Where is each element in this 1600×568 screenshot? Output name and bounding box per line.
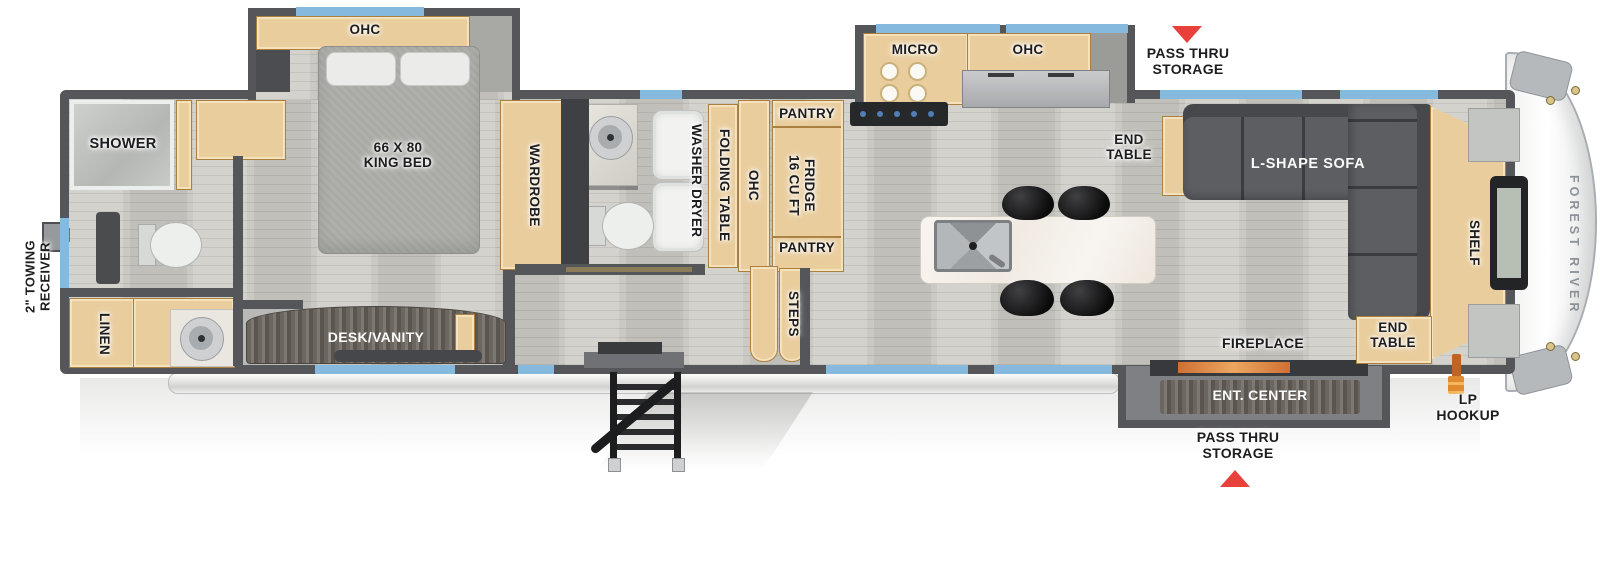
- steps-wall: [800, 268, 810, 366]
- sofa-label: L-SHAPE SOFA: [1213, 156, 1403, 172]
- kitchen-window: [826, 365, 968, 374]
- king-bed-label: 66 X 80 KING BED: [352, 140, 444, 170]
- pass-thru-bottom-label: PASS THRU STORAGE: [1184, 430, 1292, 461]
- pantry-bottom-label: PANTRY: [776, 240, 838, 255]
- rear-window: [60, 218, 69, 288]
- kitchen-window: [994, 365, 1112, 374]
- lower-skirt: [168, 372, 1120, 394]
- range-knob: [911, 111, 917, 117]
- desk-bench: [334, 350, 482, 362]
- pantry-divider: [773, 236, 841, 238]
- tv-screen: [1497, 188, 1521, 278]
- l-sofa-chaise-section: [1348, 104, 1430, 320]
- entry-steps-rail: [610, 372, 617, 462]
- living-window: [1160, 90, 1302, 99]
- entry-door-mat: [598, 342, 662, 354]
- entry-steps-foot: [608, 458, 621, 472]
- pantry-top-label: PANTRY: [776, 106, 838, 121]
- cap-rivet: [1571, 352, 1580, 361]
- bath-wall-cabinet: [96, 212, 120, 284]
- end-table-line2: TABLE: [1370, 335, 1416, 350]
- rv-floorplan-diagram: FOREST RIVER OHC MICRO OHC ENT. CENTER F…: [0, 0, 1600, 568]
- entry-steps-foot: [672, 458, 685, 472]
- king-bed-name: KING BED: [364, 155, 432, 170]
- lp-hookup-label: LP HOOKUP: [1430, 392, 1506, 423]
- island-chair: [1058, 186, 1110, 220]
- micro-label: MICRO: [868, 42, 962, 57]
- range-knob: [928, 111, 934, 117]
- mid-toilet-bowl: [602, 202, 654, 250]
- shelf-lower-cabinet: [1468, 304, 1520, 358]
- cap-rivet: [1571, 86, 1580, 95]
- pass-thru-arrow-icon: [1220, 470, 1250, 487]
- pass-thru-top-label: PASS THRU STORAGE: [1136, 46, 1240, 77]
- pocket-door-header: [566, 267, 692, 272]
- entry-door-landing: [584, 352, 684, 368]
- king-bed-size: 66 X 80: [374, 140, 423, 155]
- range-knob: [860, 111, 866, 117]
- linen-label: LINEN: [90, 310, 112, 358]
- kitchen-slide-window: [876, 24, 1000, 33]
- fridge-label: 16 CU FT FRIDGE: [786, 138, 826, 232]
- counter-handle: [988, 73, 1014, 77]
- cooktop-burner: [908, 62, 927, 81]
- bath-ohc-label: OHC: [745, 150, 761, 220]
- bedroom-ohc-label: OHC: [330, 22, 400, 37]
- bath-sink-drain: [607, 134, 614, 141]
- fireplace-insert: [1178, 362, 1290, 373]
- lp-line2: HOOKUP: [1436, 407, 1499, 423]
- towing-line1: 2" TOWING: [22, 240, 37, 313]
- bath-window: [640, 90, 682, 99]
- entry-step-rung: [617, 444, 674, 450]
- end-table-line2: TABLE: [1106, 147, 1152, 162]
- living-window: [1340, 90, 1438, 99]
- bedroom-nightstand: [196, 100, 286, 160]
- bed-pillow: [400, 52, 470, 86]
- kitchen-counter: [962, 70, 1110, 108]
- desk-vanity-label: DESK/VANITY: [316, 330, 436, 346]
- end-table-rear-label: END TABLE: [1363, 320, 1423, 350]
- end-table-line1: END: [1378, 320, 1407, 335]
- bedroom-corner-wall: [233, 300, 303, 309]
- entry-step-rung: [617, 429, 674, 435]
- range-knob: [894, 111, 900, 117]
- island-sink-drain: [969, 242, 977, 250]
- interior-step: [750, 266, 778, 362]
- hall-window: [518, 365, 554, 374]
- wardrobe-label: WARDROBE: [520, 142, 542, 228]
- counter-handle: [1048, 73, 1074, 77]
- fireplace-label: FIREPLACE: [1206, 336, 1320, 352]
- pass-thru-line1: PASS THRU: [1147, 45, 1230, 61]
- washer-dryer-label: WASHER DRYER: [678, 112, 704, 250]
- end-table-front-label: END TABLE: [1096, 132, 1162, 162]
- range-knob: [877, 111, 883, 117]
- bed-pillow: [326, 52, 396, 86]
- desk-window: [315, 365, 455, 374]
- pass-thru-line2: STORAGE: [1202, 445, 1273, 461]
- folding-table-label: FOLDING TABLE: [712, 116, 732, 254]
- shower-side-cabinet: [176, 100, 192, 190]
- towing-receiver-label: 2" TOWING RECEIVER: [23, 227, 52, 327]
- towing-line2: RECEIVER: [37, 242, 52, 311]
- pass-thru-line2: STORAGE: [1152, 61, 1223, 77]
- cooktop-burner: [908, 84, 927, 103]
- island-chair: [1060, 280, 1114, 316]
- fridge-size: 16 CU FT: [787, 155, 802, 216]
- wardrobe-chase-wall: [561, 99, 589, 269]
- pass-thru-line1: PASS THRU: [1197, 429, 1280, 445]
- shelf-label: SHELF: [1460, 206, 1482, 280]
- ent-center-label: ENT. CENTER: [1200, 388, 1320, 404]
- cap-rivet: [1546, 96, 1555, 105]
- island-chair: [1000, 280, 1054, 316]
- rear-toilet-bowl: [150, 222, 202, 268]
- cooktop-burner: [880, 62, 899, 81]
- pass-thru-arrow-icon: [1172, 26, 1202, 43]
- kitchen-slide-window: [1006, 24, 1128, 33]
- lp-line1: LP: [1459, 391, 1478, 407]
- island-chair: [1002, 186, 1054, 220]
- kitchen-ohc-label: OHC: [998, 42, 1058, 57]
- fridge-name: FRIDGE: [802, 159, 817, 212]
- end-table-line1: END: [1114, 132, 1143, 147]
- steps-label: STEPS: [783, 284, 801, 344]
- brand-logo: FOREST RIVER: [1553, 150, 1581, 340]
- cap-rivet: [1546, 342, 1555, 351]
- bath-bedroom-wall: [233, 156, 243, 366]
- pantry-divider: [773, 126, 841, 128]
- rear-sink-drain: [198, 335, 205, 342]
- shelf-upper-cabinet: [1468, 108, 1520, 162]
- linen-wall: [69, 288, 235, 297]
- shower-label: SHOWER: [80, 136, 166, 152]
- cooktop-burner: [880, 84, 899, 103]
- bedroom-slide-window: [296, 7, 424, 16]
